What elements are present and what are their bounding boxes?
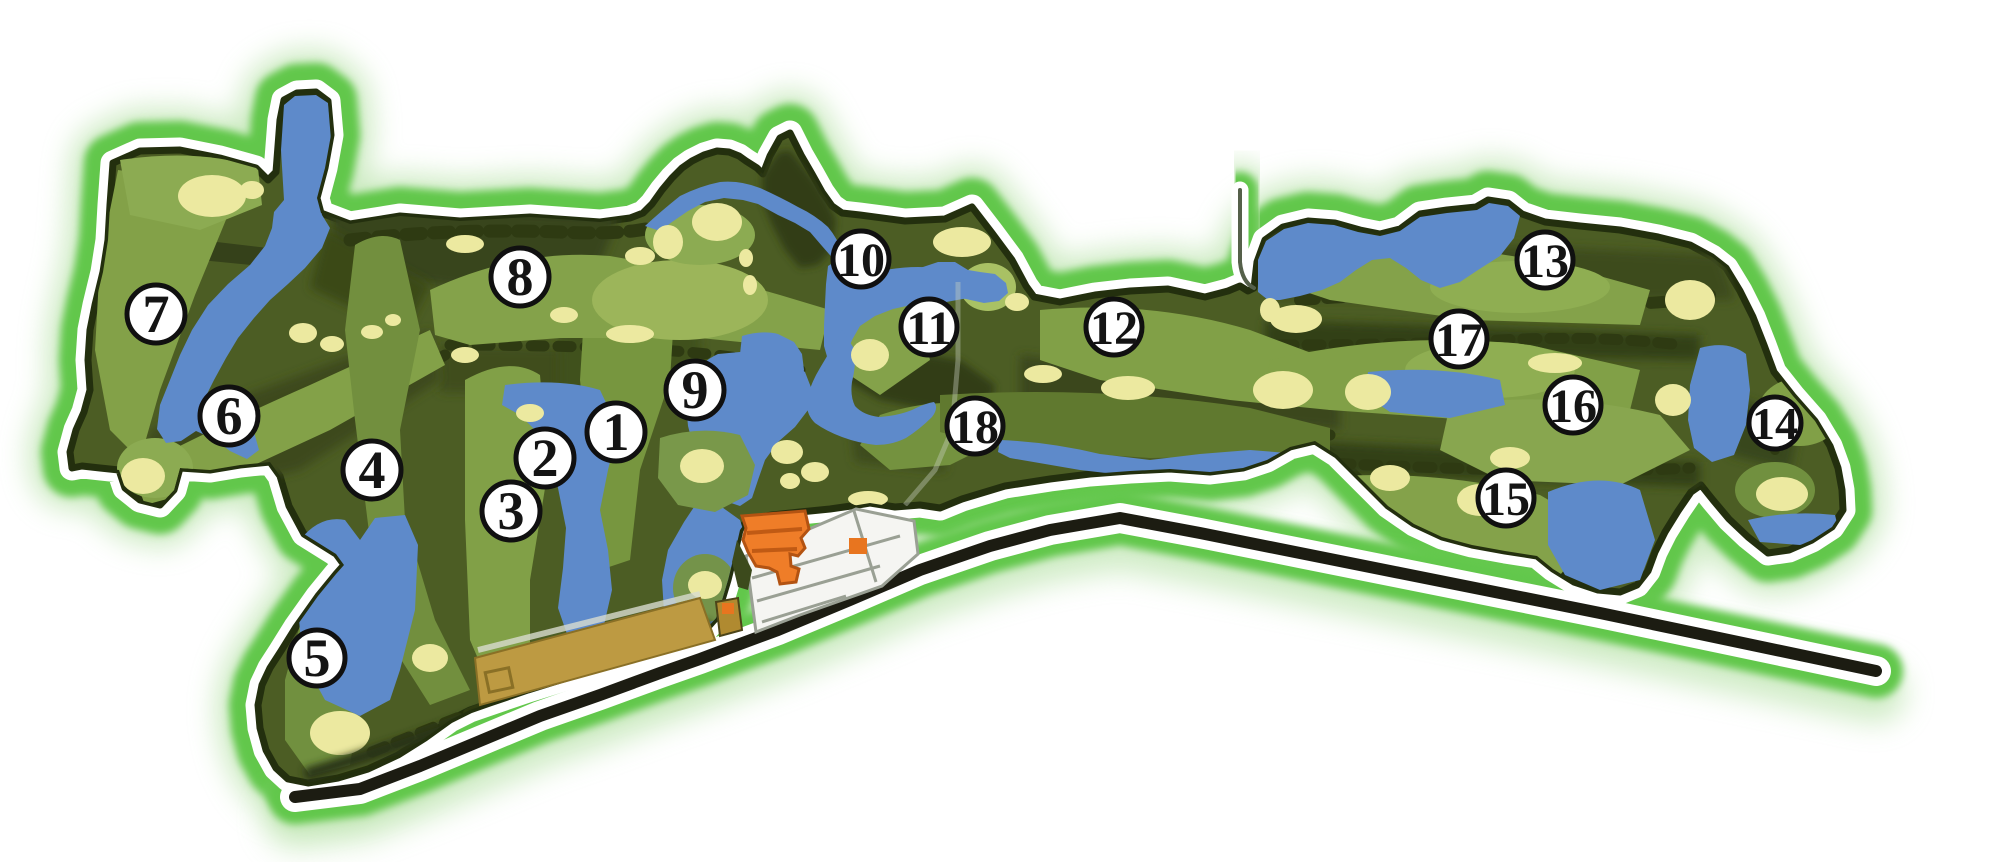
svg-text:7: 7 [143, 284, 170, 344]
svg-text:6: 6 [216, 386, 243, 446]
svg-text:2: 2 [532, 428, 559, 488]
svg-text:8: 8 [507, 247, 534, 307]
svg-text:12: 12 [1090, 302, 1138, 355]
svg-text:13: 13 [1521, 235, 1569, 288]
svg-text:14: 14 [1752, 398, 1798, 449]
svg-text:11: 11 [906, 302, 951, 355]
svg-text:17: 17 [1435, 314, 1483, 367]
svg-text:16: 16 [1549, 380, 1597, 433]
svg-text:18: 18 [951, 401, 999, 454]
svg-text:1: 1 [603, 402, 630, 462]
svg-text:9: 9 [682, 360, 709, 420]
svg-text:15: 15 [1482, 473, 1530, 526]
svg-text:5: 5 [304, 628, 331, 688]
svg-text:10: 10 [837, 234, 885, 287]
svg-text:3: 3 [498, 481, 525, 541]
svg-text:4: 4 [359, 440, 386, 500]
